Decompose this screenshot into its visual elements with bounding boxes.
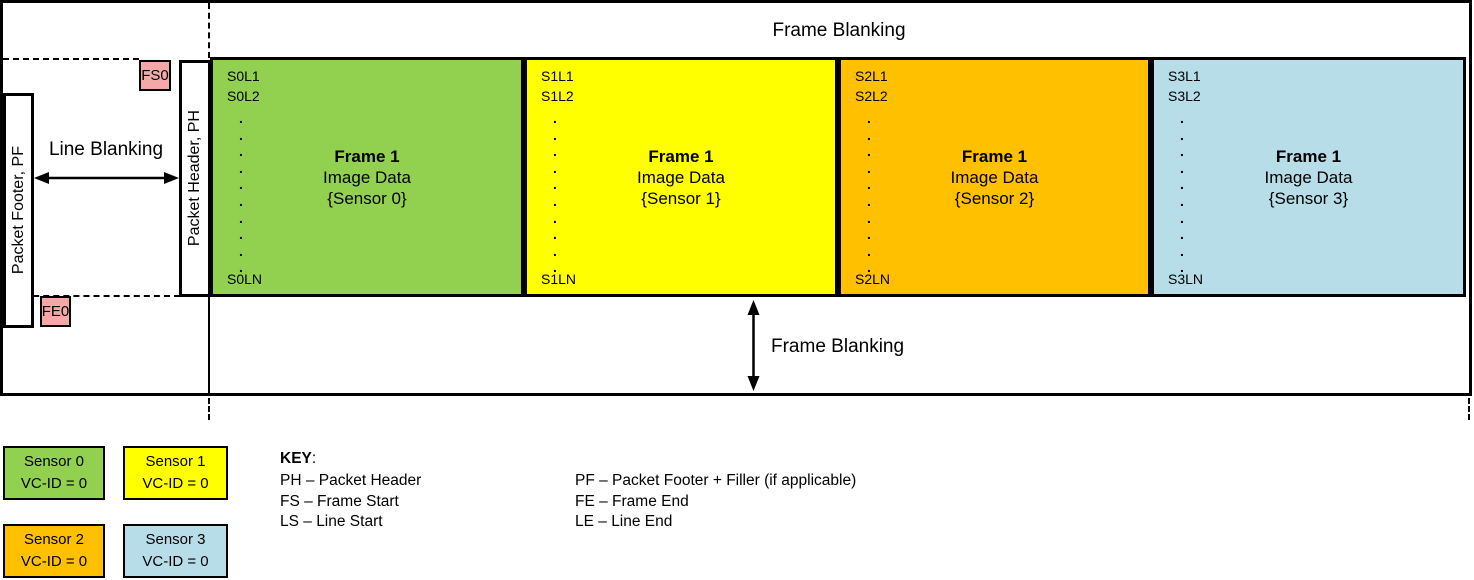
frame-timing-diagram: Frame Blanking Packet Footer, PF Packet … bbox=[0, 0, 1474, 580]
legend-vc-id: VC-ID = 0 bbox=[21, 473, 87, 495]
bottom-frame-blanking-label: Frame Blanking bbox=[771, 336, 904, 358]
line-blanking-double-arrow-icon bbox=[34, 171, 179, 185]
frame-start-marker: FS0 bbox=[139, 60, 171, 91]
legend-vc-id: VC-ID = 0 bbox=[21, 551, 87, 573]
key-column-right: PF – Packet Footer + Filler (if applicab… bbox=[575, 471, 856, 533]
packet-footer-label: Packet Footer, PF bbox=[10, 146, 28, 274]
legend-sensor-label: Sensor 1 bbox=[145, 451, 205, 473]
packet-header-box: Packet Header, PH bbox=[179, 60, 211, 297]
frame-title: Frame 1 bbox=[1276, 146, 1341, 167]
frame-title-block: Frame 1 Image Data {Sensor 3} bbox=[1154, 60, 1463, 294]
key-entry-ls: LS – Line Start bbox=[280, 512, 421, 533]
key-entry-fe: FE – Frame End bbox=[575, 492, 856, 513]
frame-title-block: Frame 1 Image Data {Sensor 2} bbox=[841, 60, 1148, 294]
frame-subtitle: Image Data bbox=[323, 167, 411, 188]
legend-sensor-label: Sensor 2 bbox=[24, 529, 84, 551]
dashed-line-top-left-of-frames bbox=[208, 3, 210, 58]
top-frame-blanking-label: Frame Blanking bbox=[210, 20, 1468, 42]
key-heading: KEY: bbox=[280, 450, 316, 468]
key-heading-bold: KEY bbox=[280, 450, 312, 467]
frame-caption: {Sensor 2} bbox=[955, 188, 1034, 209]
solid-line-bottom-left-of-frames bbox=[208, 297, 210, 393]
key-entry-le: LE – Line End bbox=[575, 512, 856, 533]
packet-header-label: Packet Header, PH bbox=[186, 110, 204, 246]
dashed-line-below-box-left bbox=[208, 398, 210, 420]
legend-vc-id: VC-ID = 0 bbox=[142, 551, 208, 573]
frame-title: Frame 1 bbox=[648, 146, 713, 167]
legend-sensor-label: Sensor 0 bbox=[24, 451, 84, 473]
frame-sensor-3: S3L1 S3L2 . . . . . . . . . . S3LN Frame… bbox=[1151, 57, 1466, 297]
key-column-left: PH – Packet Header FS – Frame Start LS –… bbox=[280, 471, 421, 533]
frame-subtitle: Image Data bbox=[637, 167, 725, 188]
legend-sensor-0: Sensor 0 VC-ID = 0 bbox=[3, 446, 105, 500]
dashed-line-packet-row-top bbox=[3, 58, 139, 60]
packet-footer-box: Packet Footer, PF bbox=[3, 93, 34, 328]
frame-subtitle: Image Data bbox=[1265, 167, 1353, 188]
frame-caption: {Sensor 0} bbox=[327, 188, 406, 209]
frame-sensor-1: S1L1 S1L2 . . . . . . . . . . S1LN Frame… bbox=[524, 57, 838, 297]
frame-sensor-0: S0L1 S0L2 . . . . . . . . . . S0LN Frame… bbox=[210, 57, 524, 297]
legend-sensor-2: Sensor 2 VC-ID = 0 bbox=[3, 524, 105, 578]
line-blanking-label: Line Blanking bbox=[30, 139, 182, 161]
key-heading-colon: : bbox=[312, 450, 316, 467]
frame-title: Frame 1 bbox=[962, 146, 1027, 167]
frame-title: Frame 1 bbox=[334, 146, 399, 167]
dashed-line-below-box-right bbox=[1468, 398, 1470, 420]
key-entry-ph: PH – Packet Header bbox=[280, 471, 421, 492]
legend-sensor-1: Sensor 1 VC-ID = 0 bbox=[123, 446, 228, 500]
key-entry-fs: FS – Frame Start bbox=[280, 492, 421, 513]
frame-title-block: Frame 1 Image Data {Sensor 0} bbox=[213, 60, 521, 294]
frame-end-marker: FE0 bbox=[40, 296, 71, 327]
frame-title-block: Frame 1 Image Data {Sensor 1} bbox=[527, 60, 835, 294]
frame-caption: {Sensor 3} bbox=[1269, 188, 1348, 209]
frame-subtitle: Image Data bbox=[951, 167, 1039, 188]
legend-vc-id: VC-ID = 0 bbox=[142, 473, 208, 495]
frame-sensor-2: S2L1 S2L2 . . . . . . . . . . S2LN Frame… bbox=[838, 57, 1151, 297]
frame-blanking-double-arrow-icon bbox=[746, 300, 761, 391]
frame-caption: {Sensor 1} bbox=[641, 188, 720, 209]
legend-sensor-3: Sensor 3 VC-ID = 0 bbox=[123, 524, 228, 578]
key-entry-pf: PF – Packet Footer + Filler (if applicab… bbox=[575, 471, 856, 492]
legend-sensor-label: Sensor 3 bbox=[145, 529, 205, 551]
